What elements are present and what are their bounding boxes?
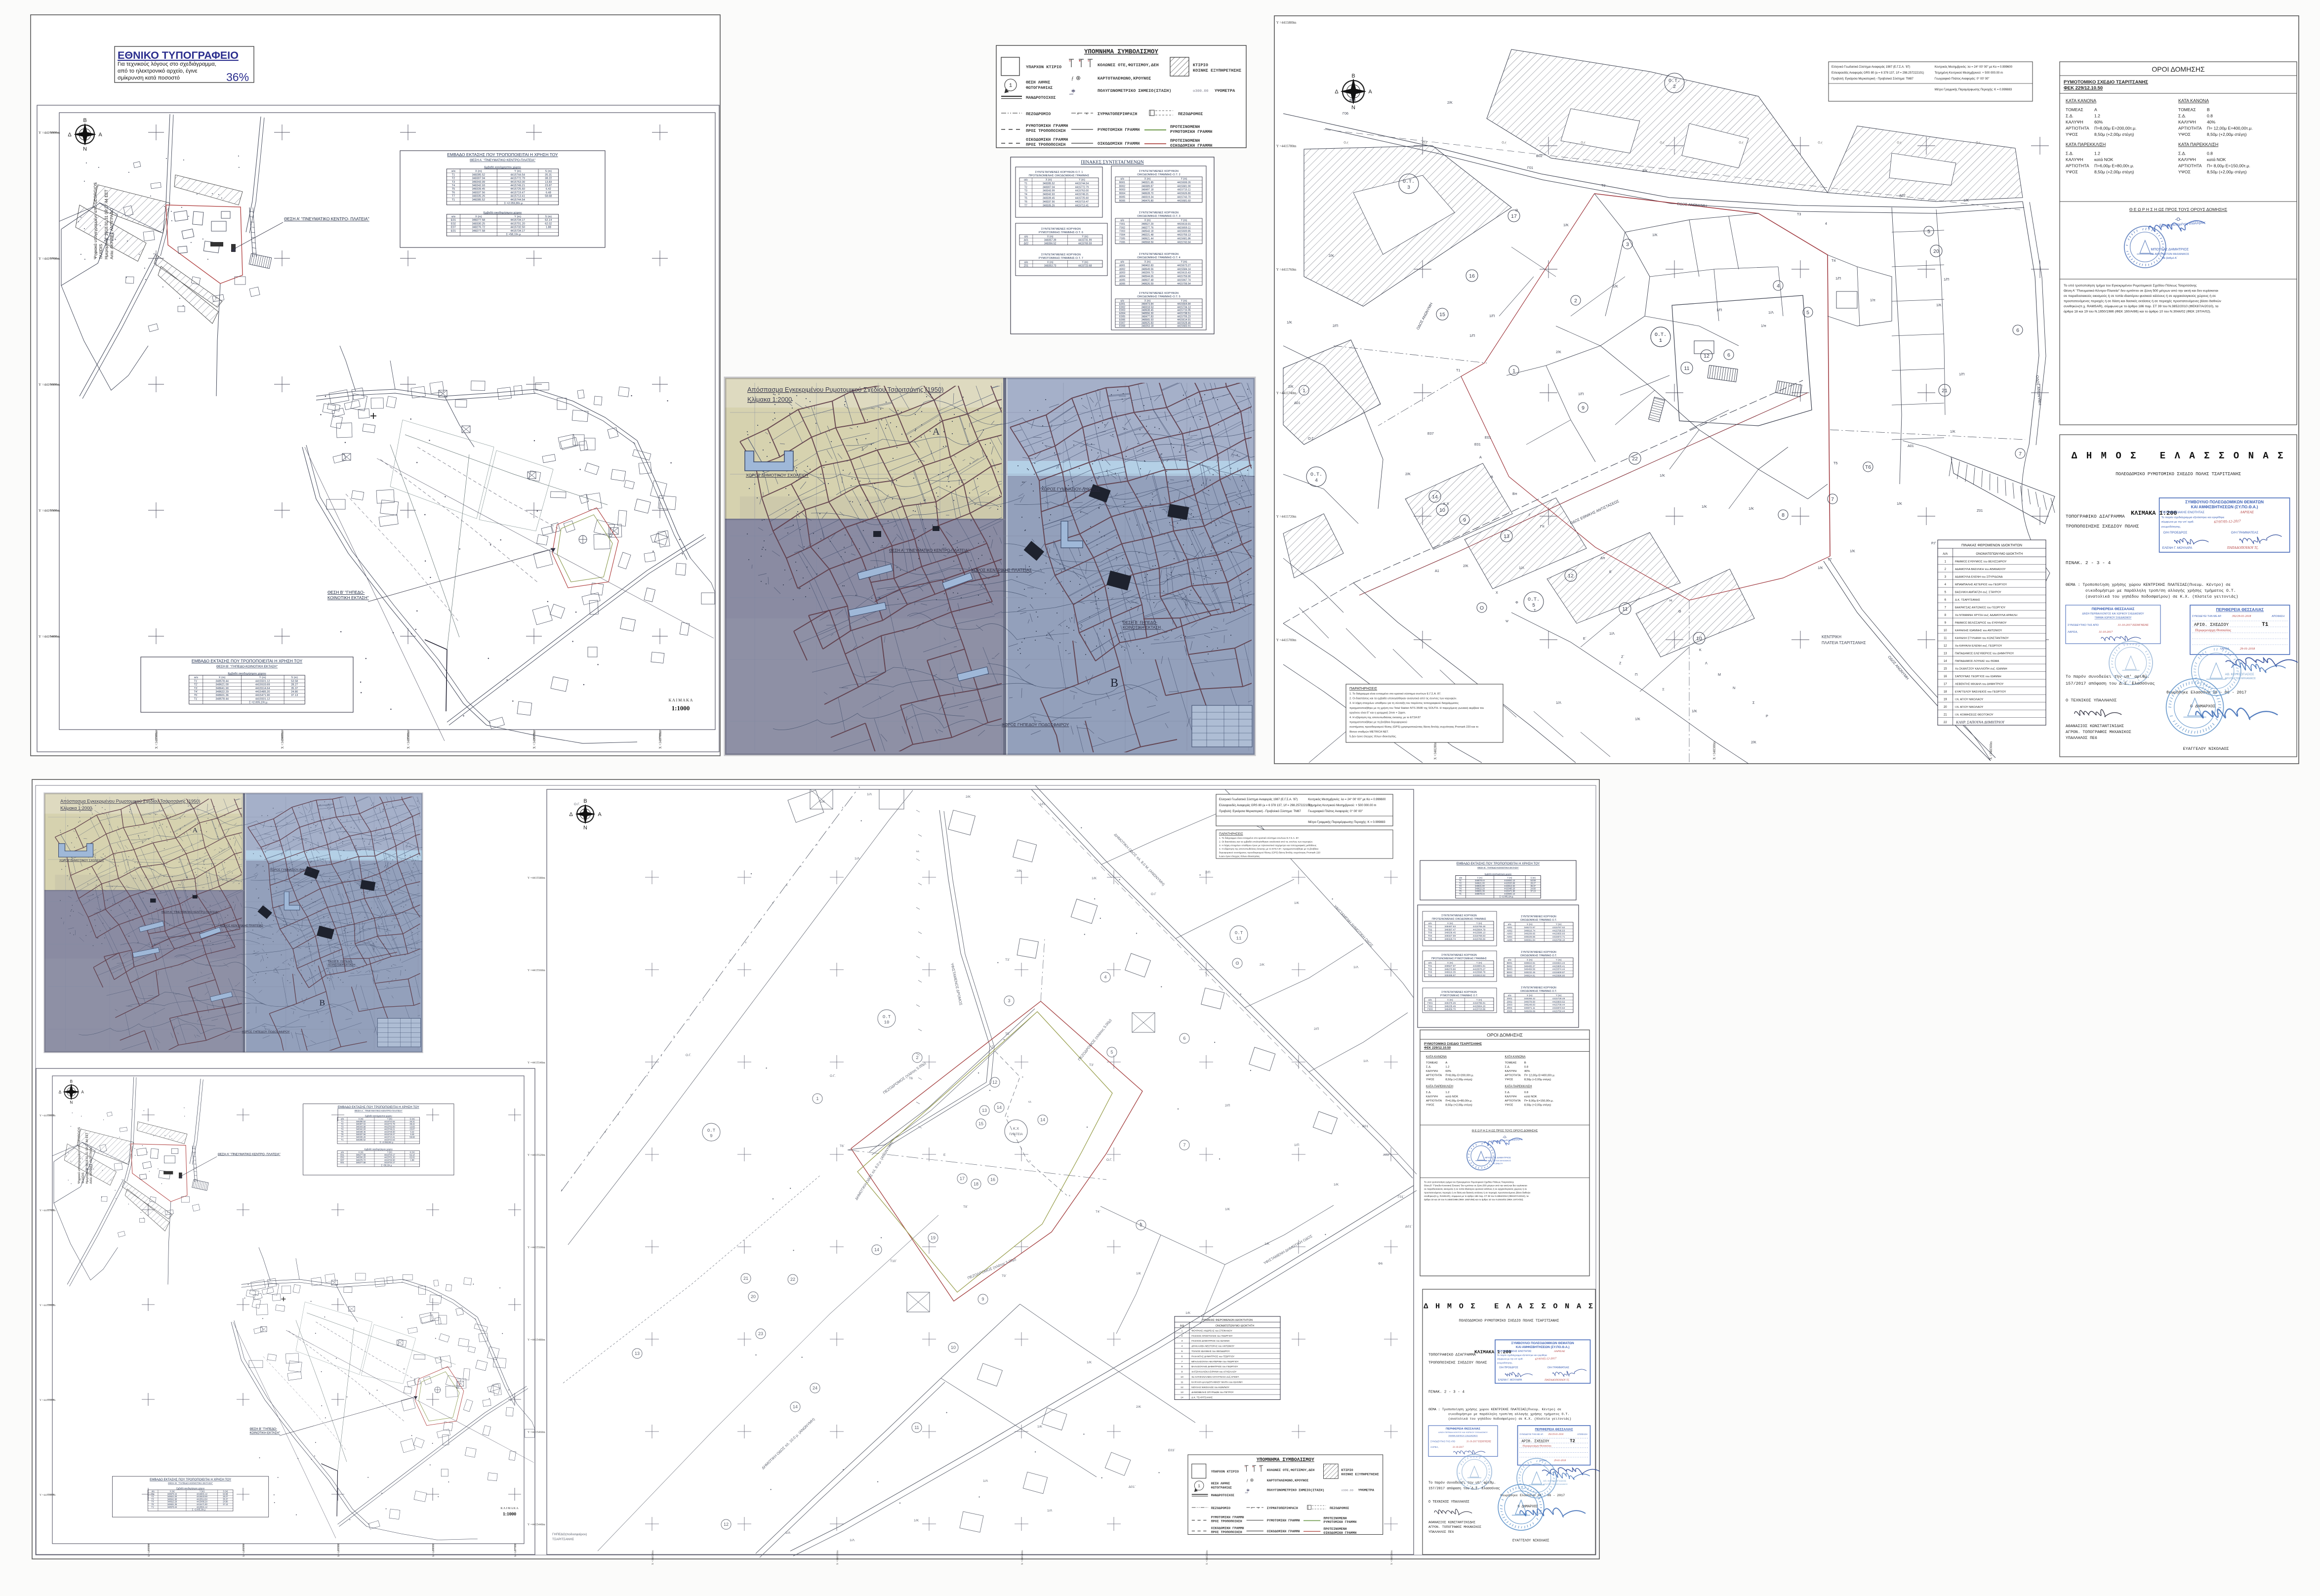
svg-text:1.88: 1.88 [410,1159,415,1161]
svg-text:ΣΥΜΒΟΥΛΙΟ ΠΟΛΕΟΔΟΜΙΚΩΝ ΘΕΜΑΤΩΝ: ΣΥΜΒΟΥΛΙΟ ΠΟΛΕΟΔΟΜΙΚΩΝ ΘΕΜΑΤΩΝ [2185,500,2264,504]
svg-text:ΘΕΣΗ Β΄ "ΓΗΠΕΔΟ-ΚΟΙΝΟΤΙΚΗ ΕΚΤΑ: ΘΕΣΗ Β΄ "ΓΗΠΕΔΟ-ΚΟΙΝΟΤΙΚΗ ΕΚΤΑΣΗ" [216,665,278,668]
svg-text:Τ4: Τ4 [341,1128,344,1131]
svg-text:X (m): X (m) [358,1151,364,1153]
svg-text:1:1000: 1:1000 [503,1512,516,1517]
svg-text:X (m): X (m) [1447,922,1453,925]
svg-text:31-10-2017: 31-10-2017 [1453,1446,1464,1449]
svg-text:8,50μ (+2,00μ στέγη): 8,50μ (+2,00μ στέγη) [2094,132,2134,137]
svg-text:Y =4415760m: Y =4415760m [1276,268,1297,272]
svg-text:Το παρόν συνοδεύει την υπ' αρι: Το παρόν συνοδεύει την υπ' αριθμ. [1428,1481,1496,1485]
svg-text:4415734.17: 4415734.17 [384,1153,395,1156]
svg-text:5: 5 [1110,1050,1113,1055]
svg-text:ΤΡΟΠΟΠΟΙΗΣΗΣ ΣΧΕΔΙΟΥ ΠΟΛΗΣ: ΤΡΟΠΟΠΟΙΗΣΗΣ ΣΧΕΔΙΟΥ ΠΟΛΗΣ [2066,524,2139,529]
svg-text:4415696.80: 4415696.80 [1552,975,1565,978]
svg-text:24: 24 [813,1386,817,1391]
svg-text:x: x [660,1055,662,1058]
svg-text:4415706.54: 4415706.54 [1177,283,1191,286]
svg-text:ΘΕΣΗ Α' ''ΠΝΕΥΜΑΤΙΚΟ ΚΕΝΤΡΟ-ΠΛ: ΘΕΣΗ Α' ''ΠΝΕΥΜΑΤΙΚΟ ΚΕΝΤΡΟ-ΠΛΑΤΕΙΑ'' [162,911,219,914]
svg-text:38.22: 38.22 [409,1123,415,1125]
svg-text:53.58: 53.58 [223,1493,228,1495]
svg-text:348329.74: 348329.74 [1444,938,1456,941]
svg-text:ΟΙΚΟΔΟΜΙΚΗΣ ΓΡΑΜΜΗΣ-Ο.Τ.: ΟΙΚΟΔΟΜΙΚΗΣ ΓΡΑΜΜΗΣ-Ο.Τ. [1520,990,1557,993]
svg-text:348248.83: 348248.83 [1524,1004,1535,1007]
svg-text:α/α: α/α [1508,994,1511,997]
svg-text:1: 1 [1302,388,1305,394]
svg-text:κατά ΝΟΚ: κατά ΝΟΚ [2094,157,2114,162]
svg-text:Ε007: Ε007 [1119,322,1125,325]
svg-text:4415664.84: 4415664.84 [1177,303,1191,306]
svg-text:δίκτυο σταθμών METRICA NET.: δίκτυο σταθμών METRICA NET. [1349,731,1389,734]
svg-text:Y (m): Y (m) [514,215,521,218]
svg-text:Y (m): Y (m) [387,1117,393,1120]
svg-text:Μ: Μ [1718,672,1721,677]
svg-text:Y (m): Y (m) [1082,261,1088,264]
svg-text:22: 22 [790,1277,795,1282]
svg-text:ΧΩΡΟΣ ΓΗΠΕΔΟΥ ΠΟΔΟΣΦΑΙΡΟΥ: ΧΩΡΟΣ ΓΗΠΕΔΟΥ ΠΟΔΟΣΦΑΙΡΟΥ [242,1030,290,1033]
svg-text:4415681.90: 4415681.90 [1177,185,1191,188]
svg-text:1/Κ: 1/Κ [1963,198,1969,203]
svg-text:9: 9 [981,1297,984,1302]
svg-text:ΜΠΟΥΛΑΣ ΔΗΜΗΤΡΙΟΣ: ΜΠΟΥΛΑΣ ΔΗΜΗΤΡΙΟΣ [2151,248,2189,251]
svg-text:1/Κ: 1/Κ [914,1519,919,1522]
svg-text:x: x [842,806,844,809]
svg-text:14: 14 [874,1247,879,1252]
svg-text:Ζ003: Ζ003 [1507,1004,1512,1007]
svg-text:δορυφορικού συστήματος προσδιο: δορυφορικού συστήματος προσδιορισμού θέσ… [1219,851,1320,855]
svg-text:Ν: Ν [1733,686,1735,690]
svg-text:9: 9 [710,1134,712,1139]
svg-text:53.58: 53.58 [291,680,298,683]
svg-text:Y =4415440m: Y =4415440m [528,1523,545,1526]
svg-text:ΠΡΟΤΕΙΝΟΜΕΝΗΣ ΡΥΜΟΤΟΜΙΚΗΣ ΓΡΑΜ: ΠΡΟΤΕΙΝΟΜΕΝΗΣ ΡΥΜΟΤΟΜΙΚΗΣ ΓΡΑΜΜΗΣ [1431,957,1487,960]
svg-text:Ζ002: Ζ002 [1507,1000,1512,1003]
svg-text:12: 12 [1568,573,1574,579]
svg-text:53.58: 53.58 [1530,879,1536,882]
svg-text:157/2017 απόφαση του Δ.Σ. Ελα: 157/2017 απόφαση του Δ.Σ. Ελασσόνας [2066,681,2155,686]
svg-text:ΚΑΤΑ ΠΑΡΕΚΚΛΙΣΗ: ΚΑΤΑ ΠΑΡΕΚΚΛΙΣΗ [1426,1085,1453,1088]
svg-text:1/Λ: 1/Λ [983,1479,988,1483]
svg-text:ΚΑΛΥΨΗ: ΚΑΛΥΨΗ [2066,120,2083,124]
svg-text:Τ4: Τ4 [452,184,455,187]
svg-text:α/α: α/α [194,676,199,679]
svg-text:Y (m): Y (m) [1181,219,1187,222]
svg-text:4415734.13: 4415734.13 [1177,306,1191,309]
svg-text:Ο.Τ: Ο.Τ [883,1015,891,1020]
svg-text:38.22: 38.22 [545,177,552,180]
svg-text:4415743.70: 4415743.70 [1177,196,1191,199]
svg-text:Τ03: Τ03 [1428,971,1432,974]
svg-text:γνωμοδότησης.: γνωμοδότησης. [1497,1361,1513,1364]
svg-text:Με βαθμό Α΄: Με βαθμό Α΄ [2162,256,2178,260]
svg-text:ΤΜΗΜΑ ΧΩΡΙΚΟΥ ΣΧΕΔΙΑΣΜΟΥ: ΤΜΗΜΑ ΧΩΡΙΚΟΥ ΣΧΕΔΙΑΣΜΟΥ [2095,616,2132,619]
svg-text:ΑΠΟΦΑΣΗ: ΑΠΟΦΑΣΗ [1577,1433,1587,1435]
svg-text:ΑΡΤΙΟΤΗΤΑ: ΑΡΤΙΟΤΗΤΑ [1426,1100,1442,1103]
svg-text:4415533.69: 4415533.69 [1504,882,1515,885]
svg-text:σύμφωνα με την υπ' αριθ.: σύμφωνα με την υπ' αριθ. [2161,521,2195,524]
svg-text:Τ3΄: Τ3΄ [1459,885,1462,887]
svg-text:348327.59: 348327.59 [1444,935,1456,938]
svg-text:11: 11 [914,1425,919,1430]
svg-text:Ε01: Ε01 [340,1153,344,1156]
svg-text:Α003: Α003 [1507,933,1513,936]
svg-text:ΠΙΝΑΚΕΣ ΣΥΝΤΕΤΑΓΜΕΝΩΝ: ΠΙΝΑΚΕΣ ΣΥΝΤΕΤΑΓΜΕΝΩΝ [1081,160,1144,165]
svg-text:x: x [605,1131,606,1134]
svg-text:19: 19 [1944,698,1947,701]
svg-text:Y =4415540m: Y =4415540m [528,1061,545,1064]
svg-text:Ζ01: Ζ01 [1977,508,1983,513]
svg-text:ΠΡΟΣ ΤΡΟΠΟΠΟΙΗΣΗ: ΠΡΟΣ ΤΡΟΠΟΠΟΙΗΣΗ [1211,1530,1242,1534]
svg-text:Y =4415800m: Y =4415800m [39,130,60,135]
svg-text:0.8: 0.8 [2207,114,2213,119]
svg-text:8,50μ (+2,00μ στέγη): 8,50μ (+2,00μ στέγη) [1524,1104,1551,1107]
svg-text:Γ06: Γ06 [1343,111,1348,116]
svg-text:X =348520m: X =348520m [836,1550,839,1565]
svg-text:ΥΨΟΣ: ΥΨΟΣ [1505,1078,1513,1081]
svg-text:ΥΠΑΡΧΟΝ ΚΤΙΡΙΟ: ΥΠΑΡΧΟΝ ΚΤΙΡΙΟ [1026,65,1061,70]
svg-text:19: 19 [931,1235,936,1240]
svg-text:348276.72: 348276.72 [472,226,485,229]
svg-text:S (m): S (m) [223,1490,228,1492]
svg-text:348641.90: 348641.90 [1475,885,1485,887]
svg-text:1/Κ: 1/Κ [1092,877,1097,880]
svg-text:ΟΙΚΟΔΟΜΙΚΗ ΓΡΑΜΜΗ: ΟΙΚΟΔΟΜΙΚΗ ΓΡΑΜΜΗ [1026,137,1068,142]
svg-text:4415725.60: 4415725.60 [384,1131,395,1133]
svg-text:x: x [745,941,747,944]
svg-text:ΠΡΟΣ ΤΡΟΠΟΠΟΙΗΣΗ: ΠΡΟΣ ΤΡΟΠΟΠΟΙΗΣΗ [1211,1520,1242,1523]
svg-text:Ο/Η ΠΡΟΕΔΡΟΣ: Ο/Η ΠΡΟΕΔΡΟΣ [2163,531,2188,534]
svg-text:6: 6 [1181,1355,1183,1358]
svg-text:8: 8 [1181,1365,1183,1368]
svg-text:4415765.50: 4415765.50 [1473,938,1486,941]
svg-text:Θ: Θ [1235,961,1239,966]
svg-text:Β: Β [1491,475,1493,479]
svg-text:13: 13 [1944,652,1947,655]
svg-text:X =348560m: X =348560m [1206,1550,1209,1565]
svg-text:Ψ: Ψ [1506,619,1508,623]
svg-text:392/29-01-2018: 392/29-01-2018 [1548,1433,1564,1436]
svg-text:1/Κ: 1/Κ [1287,320,1292,325]
svg-text:Ο.Τ.: Ο.Τ. [1655,332,1667,338]
svg-text:ΡΥΜΟΤΟΜΙΚΗ ΓΡΑΜΜΗ: ΡΥΜΟΤΟΜΙΚΗ ΓΡΑΜΜΗ [1267,1519,1300,1522]
svg-text:3. Η λήψη στοιχείων υπαίθρου γ: 3. Η λήψη στοιχείων υπαίθρου για τη σύντ… [1349,701,1459,705]
svg-text:17: 17 [1511,213,1517,219]
svg-text:4415600.85: 4415600.85 [1177,230,1191,233]
svg-text:ΡΥΜΟΤΟΜΙΚΟ ΣΧΕΔΙΟ ΤΣΑΡΙΤΣΑΝΗΣ: ΡΥΜΟΤΟΜΙΚΟ ΣΧΕΔΙΟ ΤΣΑΡΙΤΣΑΝΗΣ [2064,80,2148,85]
svg-text:Σ.Δ.: Σ.Δ. [2066,114,2074,119]
svg-text:Τ02: Τ02 [1428,968,1432,971]
svg-text:Χα ΝΤΑΜΑΝΗ ΧΡΥΣΗ συζ. ΑΔΑΜΟΥΛΑ: Χα ΝΤΑΜΑΝΗ ΧΡΥΣΗ συζ. ΑΔΑΜΟΥΛΑ ΗΡΑΚΛΗ [1955,614,2017,617]
svg-text:348226.55: 348226.55 [1524,936,1535,939]
svg-text:X (m): X (m) [1144,261,1151,264]
svg-text:1.2: 1.2 [1445,1066,1449,1069]
svg-text:Y (m): Y (m) [1181,300,1187,303]
svg-text:Ο/Η ΠΡΟΕΔΡΟΣ: Ο/Η ΠΡΟΕΔΡΟΣ [1499,1366,1518,1369]
svg-text:Το υπό τροποποίηση τμήμα του Ε: Το υπό τροποποίηση τμήμα του Εγκεκριμένο… [1424,1180,1514,1183]
svg-text:ΚΟΛΩΝΕΣ ΟΤΕ,ΦΩΤΙΣΜΟΥ,ΔΕΗ: ΚΟΛΩΝΕΣ ΟΤΕ,ΦΩΤΙΣΜΟΥ,ΔΕΗ [1098,63,1159,68]
svg-text:Α002: Α002 [1507,929,1513,932]
svg-text:Δ32: Δ32 [1245,1492,1248,1494]
svg-text:ΘΕΣΗ ΛΗΨΗΣ: ΘΕΣΗ ΛΗΨΗΣ [1026,81,1050,85]
svg-text:ΠΑΡΑΤΗΡΗΣΕΙΣ: ΠΑΡΑΤΗΡΗΣΕΙΣ [1219,832,1243,836]
svg-text:Κλίμακα 1:2000: Κλίμακα 1:2000 [747,396,792,403]
svg-text:S (m): S (m) [291,676,298,679]
svg-text:X (m): X (m) [1527,923,1533,926]
svg-text:348543.18: 348543.18 [1141,230,1154,233]
svg-text:3: 3 [1626,242,1629,247]
svg-text:4: 4 [1181,1345,1183,1348]
svg-text:Χ: Χ [1496,590,1498,595]
svg-text:0.8: 0.8 [2207,151,2213,156]
svg-text:13.83: 13.83 [409,1125,415,1128]
svg-text:Απόσπασμα Εγκεκριμένου Ρυμοτομ: Απόσπασμα Εγκεκριμένου Ρυμοτομικού Σχεδί… [60,799,200,804]
svg-text:4415533.69: 4415533.69 [255,684,270,687]
svg-text:348307.04: 348307.04 [472,177,485,180]
svg-text:Y (m): Y (m) [1476,922,1482,925]
svg-text:60%: 60% [1445,1070,1451,1073]
svg-text:4. Η εξάρτηση της αποτυπωθείσα: 4. Η εξάρτηση της αποτυπωθείσας έκτασης … [1219,847,1318,851]
svg-text:ΠΕΡΙΦΕΡΕΙΑ ΘΕΣΣΑΛΙΑΣ: ΠΕΡΙΦΕΡΕΙΑ ΘΕΣΣΑΛΙΑΣ [2216,608,2264,612]
svg-text:4. Η εξάρτηση της αποτυπωθείσα: 4. Η εξάρτηση της αποτυπωθείσας έκτασης … [1349,716,1421,719]
svg-text:Ο.Γ: Ο.Γ [1151,893,1156,896]
svg-text:Τ7: Τ7 [341,1136,344,1139]
svg-text:14: 14 [1432,494,1438,500]
svg-text:Y (m): Y (m) [1556,923,1562,926]
svg-text:Τ3': Τ3' [1089,1064,1094,1067]
svg-text:κατά ΝΟΚ: κατά ΝΟΚ [1524,1095,1537,1099]
svg-text:ΚΑΤΑ ΚΑΝΟΝΑ: ΚΑΤΑ ΚΑΝΟΝΑ [1505,1055,1526,1059]
svg-text:62.02: 62.02 [409,1156,415,1159]
svg-text:x: x [630,1094,632,1097]
svg-text:1: 1 [1009,83,1013,89]
svg-text:3: 3 [1407,185,1410,191]
svg-text:1/Π: 1/Π [1944,277,1949,282]
svg-text:ΤΡΟΠΟΠΟΙΗΣΗΣ ΣΧΕΔΙΟΥ ΠΟΛΗΣ: ΤΡΟΠΟΠΟΙΗΣΗΣ ΣΧΕΔΙΟΥ ΠΟΛΗΣ [1428,1361,1487,1365]
svg-text:348285.52: 348285.52 [472,173,485,176]
svg-text:X =348300m: X =348300m [1712,741,1716,760]
svg-text:ΠΕΖΟΔΡΟΜΙΟ: ΠΕΖΟΔΡΟΜΙΟ [1026,112,1051,117]
svg-text:Φ6: Φ6 [1378,1262,1383,1266]
svg-text:Σ =58,19τ.μ.: Σ =58,19τ.μ. [506,233,522,236]
svg-text:ΥΨΟΣ: ΥΨΟΣ [2066,169,2078,174]
svg-text:Β001: Β001 [1119,181,1125,184]
svg-text:ΟΝΟΜΑΤΕΠΩΝΥΜΟ ΙΔΙΟΚΤΗΤΗ: ΟΝΟΜΑΤΕΠΩΝΥΜΟ ΙΔΙΟΚΤΗΤΗ [1976,552,2023,556]
svg-text:Ρ: Ρ [1766,714,1768,718]
svg-text:ΘΕΣΗ Β΄ ΓΗΠΕΔΟ-: ΘΕΣΗ Β΄ ΓΗΠΕΔΟ- [328,960,353,963]
svg-text:οικοδομήσιμο με παράλληλη τροπ: οικοδομήσιμο με παράλληλη τροπ/ση αλλαγή… [1448,1412,1569,1416]
svg-text:ΦΩΤΟΓΡΑΦΙΑΣ: ΦΩΤΟΓΡΑΦΙΑΣ [1211,1486,1232,1490]
svg-text:4415664.20: 4415664.20 [1473,1005,1486,1008]
svg-text:1/Λ: 1/Λ [855,857,860,860]
svg-text:Τ5: Τ5 [1024,197,1027,200]
svg-text:Τ7: Τ7 [452,195,455,198]
svg-text:Δ.Κ. ΤΣΑΡΙΤΣΑΝΗΣ: Δ.Κ. ΤΣΑΡΙΤΣΑΝΗΣ [1191,1396,1213,1399]
svg-text:Ο.Γ.: Ο.Γ. [830,1074,836,1078]
svg-text:ο300.00: ο300.00 [1193,89,1209,93]
svg-text:1/Λ: 1/Λ [1556,700,1561,705]
svg-text:58.68: 58.68 [545,195,552,198]
svg-text:Σ: Σ [1752,700,1755,705]
svg-text:ΓΗΠΕΔΟ(ποδοσφαίρου): ΓΗΠΕΔΟ(ποδοσφαίρου) [552,1532,587,1536]
svg-text:κατά ΝΟΚ: κατά ΝΟΚ [2207,157,2226,162]
svg-text:α/α: α/α [1459,877,1463,879]
svg-text:Γ01΄: Γ01΄ [1398,1195,1405,1199]
svg-text:ΠΕ ΑΡΧΙΤΕΚΤΩΝ ΜΗΧΑΝΙΚΟΣ: ΠΕ ΑΡΧΙΤΕΚΤΩΝ ΜΗΧΑΝΙΚΟΣ [1485,1160,1511,1162]
svg-text:α/α: α/α [1024,179,1027,182]
svg-text:ΛΑΡΙΣΑΣ: ΛΑΡΙΣΑΣ [1553,1350,1565,1353]
svg-text:ΥΨΟΜΕΤΡΑ: ΥΨΟΜΕΤΡΑ [1358,1488,1375,1492]
svg-text:14: 14 [793,1404,798,1409]
svg-text:ΣΥΝΤΕΤΑΓΜΕΝΕΣ ΚΟΡΥΦΩΝ: ΣΥΝΤΕΤΑΓΜΕΝΕΣ ΚΟΡΥΦΩΝ [1521,951,1556,954]
svg-text:Y (m): Y (m) [514,170,521,173]
svg-text:8,50μ (+2,00μ στέγη): 8,50μ (+2,00μ στέγη) [2207,169,2247,174]
svg-text:4415619.91: 4415619.91 [1177,223,1191,226]
svg-text:ΠΑΡΑΤΗΡΗΣΕΙΣ: ΠΑΡΑΤΗΡΗΣΕΙΣ [1349,686,1377,691]
svg-text:1/Κ: 1/Κ [1136,1272,1141,1275]
svg-text:24.80: 24.80 [291,691,298,694]
svg-text:Το παρόν σχεδιάγραμμα εξετάστη: Το παρόν σχεδιάγραμμα εξετάστηκε και εγκ… [2161,516,2225,519]
svg-text:X =348700m: X =348700m [514,1543,517,1557]
svg-text:Δ/ΝΣΗ ΠΕΡΙΒΑΛΛΟΝΤΟΣ ΚΑΙ ΧΩΡΙΚΟ: Δ/ΝΣΗ ΠΕΡΙΒΑΛΛΟΝΤΟΣ ΚΑΙ ΧΩΡΙΚΟΥ ΣΧΕΔΙΑΣΜ… [2082,613,2144,615]
svg-text:348621.00: 348621.00 [1475,882,1485,885]
svg-text:X (m): X (m) [1477,877,1483,879]
svg-text:348544.65: 348544.65 [1141,275,1154,278]
svg-text:Ω: Ω [1515,208,1518,212]
svg-text:6.42: 6.42 [546,188,551,191]
svg-text:12: 12 [1180,1386,1183,1389]
svg-text:4415723.68: 4415723.68 [1078,265,1092,268]
svg-text:Τ8΄: Τ8΄ [963,1205,968,1209]
svg-text:348578.44: 348578.44 [167,1493,177,1495]
svg-text:ΘΕΣΗ Β΄ ΓΗΠΕΔΟ-: ΘΕΣΗ Β΄ ΓΗΠΕΔΟ- [1123,620,1157,625]
svg-text:348622.29: 348622.29 [167,1501,177,1503]
svg-text:ΠΛΑΤΕΙΑ ΤΣΑΡΙΤΣΑΝΗΣ: ΠΛΑΤΕΙΑ ΤΣΑΡΙΤΣΑΝΗΣ [1822,641,1866,645]
svg-text:1/Λ: 1/Λ [1519,566,1524,570]
svg-text:348578.44: 348578.44 [215,680,228,683]
svg-text:ΚΑΤΑ ΚΑΝΟΝΑ: ΚΑΤΑ ΚΑΝΟΝΑ [2178,98,2209,103]
svg-text:348357.39: 348357.39 [1044,239,1057,242]
svg-text:28.27: 28.27 [223,1495,228,1498]
svg-text:2/Κ: 2/Κ [1288,384,1294,389]
svg-text:x: x [1007,1115,1009,1118]
svg-text:συστήματος προσδιορισμού θέσης: συστήματος προσδιορισμού θέσης (GPS) χρη… [1349,725,1478,729]
svg-text:ΑΔΑΜΟΥΛΑ ΕΛΕΝΗ του ΣΠΥΡΙΔΩΝΑ: ΑΔΑΜΟΥΛΑ ΕΛΕΝΗ του ΣΠΥΡΙΔΩΝΑ [1955,575,2003,578]
svg-text:Τ04: Τ04 [1428,935,1432,938]
svg-text:4415767.62: 4415767.62 [1552,926,1565,929]
svg-text:ΚΑΛΥΨΗ: ΚΑΛΥΨΗ [1426,1096,1438,1099]
svg-text:Εμβαδό οικοδομήσιμου χώρου: Εμβαδό οικοδομήσιμου χώρου [365,1148,393,1150]
svg-text:10: 10 [1944,629,1947,632]
svg-text:ΚΟΙΝΗΣ ΕΞΥΠΗΡΕΤΗΣΗΣ: ΚΟΙΝΗΣ ΕΞΥΠΗΡΕΤΗΣΗΣ [1341,1473,1379,1476]
svg-text:Δ32: Δ32 [1069,93,1074,95]
svg-text:ΛΑΡΙΣΑΣ: ΛΑΡΙΣΑΣ [2239,510,2254,514]
svg-text:4415615.43: 4415615.43 [1177,272,1191,275]
svg-text:(ανατολικά του γηπέδου ποδοσφα: (ανατολικά του γηπέδου ποδοσφαίρου) σε Κ… [1448,1417,1571,1421]
svg-text:Ελληνικό Γεωδαιτικό Σύστημα Αν: Ελληνικό Γεωδαιτικό Σύστημα Αναφοράς 198… [1832,65,1910,69]
svg-text:28.27: 28.27 [1530,882,1536,885]
svg-text:Π= 8,00μ Ε=150,00τ.μ.: Π= 8,00μ Ε=150,00τ.μ. [2207,164,2250,168]
svg-text:Τ2΄: Τ2΄ [194,684,199,687]
svg-text:Σ.Δ.: Σ.Δ. [1426,1091,1431,1094]
svg-text:Ε01: Ε01 [451,219,456,222]
svg-text:4415471.90: 4415471.90 [1504,890,1515,893]
svg-text:1.88: 1.88 [546,226,551,229]
svg-text:α/α: α/α [1120,178,1124,181]
svg-text:4415613.52: 4415613.52 [1473,974,1486,977]
svg-text:ΠΟΛΥΓΩΝΟΜΕΤΡΙΚΟ ΣΗΜΕΙΟ(ΣΤΑΣΗ): ΠΟΛΥΓΩΝΟΜΕΤΡΙΚΟ ΣΗΜΕΙΟ(ΣΤΑΣΗ) [1098,88,1172,93]
svg-text:X =348500m: X =348500m [651,1550,654,1565]
svg-text:Τ2: Τ2 [1601,183,1605,188]
svg-text:S (m): S (m) [410,1151,415,1153]
svg-text:1/π: 1/π [1761,324,1766,328]
svg-text:x: x [786,884,788,887]
svg-text:4415715.95: 4415715.95 [1177,309,1191,312]
svg-text:Ε02: Ε02 [340,1156,344,1159]
svg-text:0.8: 0.8 [1524,1066,1528,1069]
svg-text:348644.61: 348644.61 [1524,962,1535,965]
svg-text:ΚΟΛΩΝΕΣ ΟΤΕ,ΦΩΤΙΣΜΟΥ,ΔΕΗ: ΚΟΛΩΝΕΣ ΟΤΕ,ΦΩΤΙΣΜΟΥ,ΔΕΗ [1267,1469,1314,1473]
svg-text:ΥΨΟΣ: ΥΨΟΣ [2066,132,2078,137]
svg-text:14: 14 [997,1105,1002,1110]
svg-text:Β: Β [320,998,325,1008]
svg-text:Δ01: Δ01 [1294,401,1301,405]
svg-text:Βπ: Βπ [1512,491,1517,496]
svg-text:348621.00: 348621.00 [215,684,228,687]
svg-text:Γ005: Γ005 [1119,238,1125,241]
svg-text:x: x [829,826,830,829]
svg-text:ΚΑΤΑ ΠΑΡΕΚΚΛΙΣΗ: ΚΑΤΑ ΠΑΡΕΚΚΛΙΣΗ [2066,142,2106,147]
svg-text:ΘΕΣΗ ΛΗΨΗΣ: ΘΕΣΗ ΛΗΨΗΣ [1211,1482,1230,1485]
svg-text:348621.00: 348621.00 [167,1495,177,1498]
svg-text:Y (m): Y (m) [387,1151,393,1153]
svg-text:348476.80: 348476.80 [1141,200,1154,203]
svg-text:4415501.12: 4415501.12 [197,1506,207,1508]
svg-text:1.2: 1.2 [1445,1091,1449,1094]
svg-text:Ε: Ε [943,1153,946,1157]
svg-text:ΘΕΣΗ Β΄ "ΓΗΠΕΔΟ-ΚΟΙΝΟΤΙΚΗ ΕΚΤΑ: ΘΕΣΗ Β΄ "ΓΗΠΕΔΟ-ΚΟΙΝΟΤΙΚΗ ΕΚΤΑΣΗ" [168,1482,213,1485]
svg-text:προστατευόμενες περιοχές ή σε: προστατευόμενες περιοχές ή σε δάση και δ… [2064,299,2221,303]
svg-text:Σ.Δ.: Σ.Δ. [1426,1066,1431,1069]
svg-text:ΚΕΝΤΡΙΚΗ: ΚΕΝΤΡΙΚΗ [1822,635,1841,639]
svg-text:Y (m): Y (m) [200,1490,205,1492]
svg-text:2/Κ: 2/Κ [1447,100,1453,105]
svg-text:4415574.44: 4415574.44 [1552,968,1565,971]
svg-text:1/Λ: 1/Λ [850,1539,855,1542]
svg-text:ΠΑΣΧΟΣ ΔΗΜΗΤΡΙΟΣ του ΙΩΑΝΝΗ: ΠΑΣΧΟΣ ΔΗΜΗΤΡΙΟΣ του ΙΩΑΝΝΗ [1191,1340,1230,1343]
svg-text:ΠΕΡΙΦΕΡΕΙΑ ΘΕΣΣΑΛΙΑΣ: ΠΕΡΙΦΕΡΕΙΑ ΘΕΣΣΑΛΙΑΣ [2092,607,2135,611]
svg-text:ΜΑΝΔΡΟΤΟΙΧΟΣ: ΜΑΝΔΡΟΤΟΙΧΟΣ [1211,1494,1234,1497]
svg-text:Τ6: Τ6 [341,1133,344,1136]
svg-text:Ε02: Ε02 [451,222,456,225]
svg-text:X (m): X (m) [1047,261,1054,264]
svg-text:ΘΕΜΑ : Τροποποίηση χρήσης χώρο: ΘΕΜΑ : Τροποποίηση χρήσης χώρου ΚΕΝΤΡΙΚΗ… [2066,582,2231,587]
svg-text:13: 13 [635,1351,640,1356]
svg-text:Ο: Ο [1480,605,1484,611]
svg-text:πραγματοποιήθηκε με τη χρήση τ: πραγματοποιήθηκε με τη χρήση του Total S… [1349,706,1484,710]
svg-text:ΤΣΑΡΙΤΣΑΝΗΣ: ΤΣΑΡΙΤΣΑΝΗΣ [552,1538,574,1541]
svg-text:ΕΜΒΑΔΟ ΕΚΤΑΣΗΣ ΠΟΥ ΤΡΟΠΟΠΟΙΕΙΤ: ΕΜΒΑΔΟ ΕΚΤΑΣΗΣ ΠΟΥ ΤΡΟΠΟΠΟΙΕΙΤΑΙ Η ΧΡΗΣΗ… [338,1105,420,1109]
svg-text:Τ3: Τ3 [1797,212,1801,216]
svg-text:4415759.13: 4415759.13 [1177,234,1191,237]
svg-text:348601.36: 348601.36 [1475,890,1485,893]
svg-text:ΟΙΚΟΔΟΜΙΚΗ ΓΡΑΜΜΗ: ΟΙΚΟΔΟΜΙΚΗ ΓΡΑΜΜΗ [1267,1530,1300,1533]
svg-text:Φ: Φ [1515,600,1518,605]
svg-text:ΡΥΜΟΤΟΜΙΚΟ ΣΧΕΔΙΟ ΤΣΑΡΙΤΣΑΝΗΣ: ΡΥΜΟΤΟΜΙΚΟ ΣΧΕΔΙΟ ΤΣΑΡΙΤΣΑΝΗΣ [1424,1042,1482,1046]
svg-text:Y (m): Y (m) [1507,877,1512,879]
svg-text:Θ: Θ [1678,609,1681,614]
svg-text:x: x [992,1045,993,1048]
svg-text:ΣΥΝΤΕΤΑΓΜΕΝΕΣ ΚΟΡΥΦΩΝ: ΣΥΝΤΕΤΑΓΜΕΝΕΣ ΚΟΡΥΦΩΝ [1139,211,1179,214]
svg-text:Σ.Δ.: Σ.Δ. [1505,1066,1510,1069]
